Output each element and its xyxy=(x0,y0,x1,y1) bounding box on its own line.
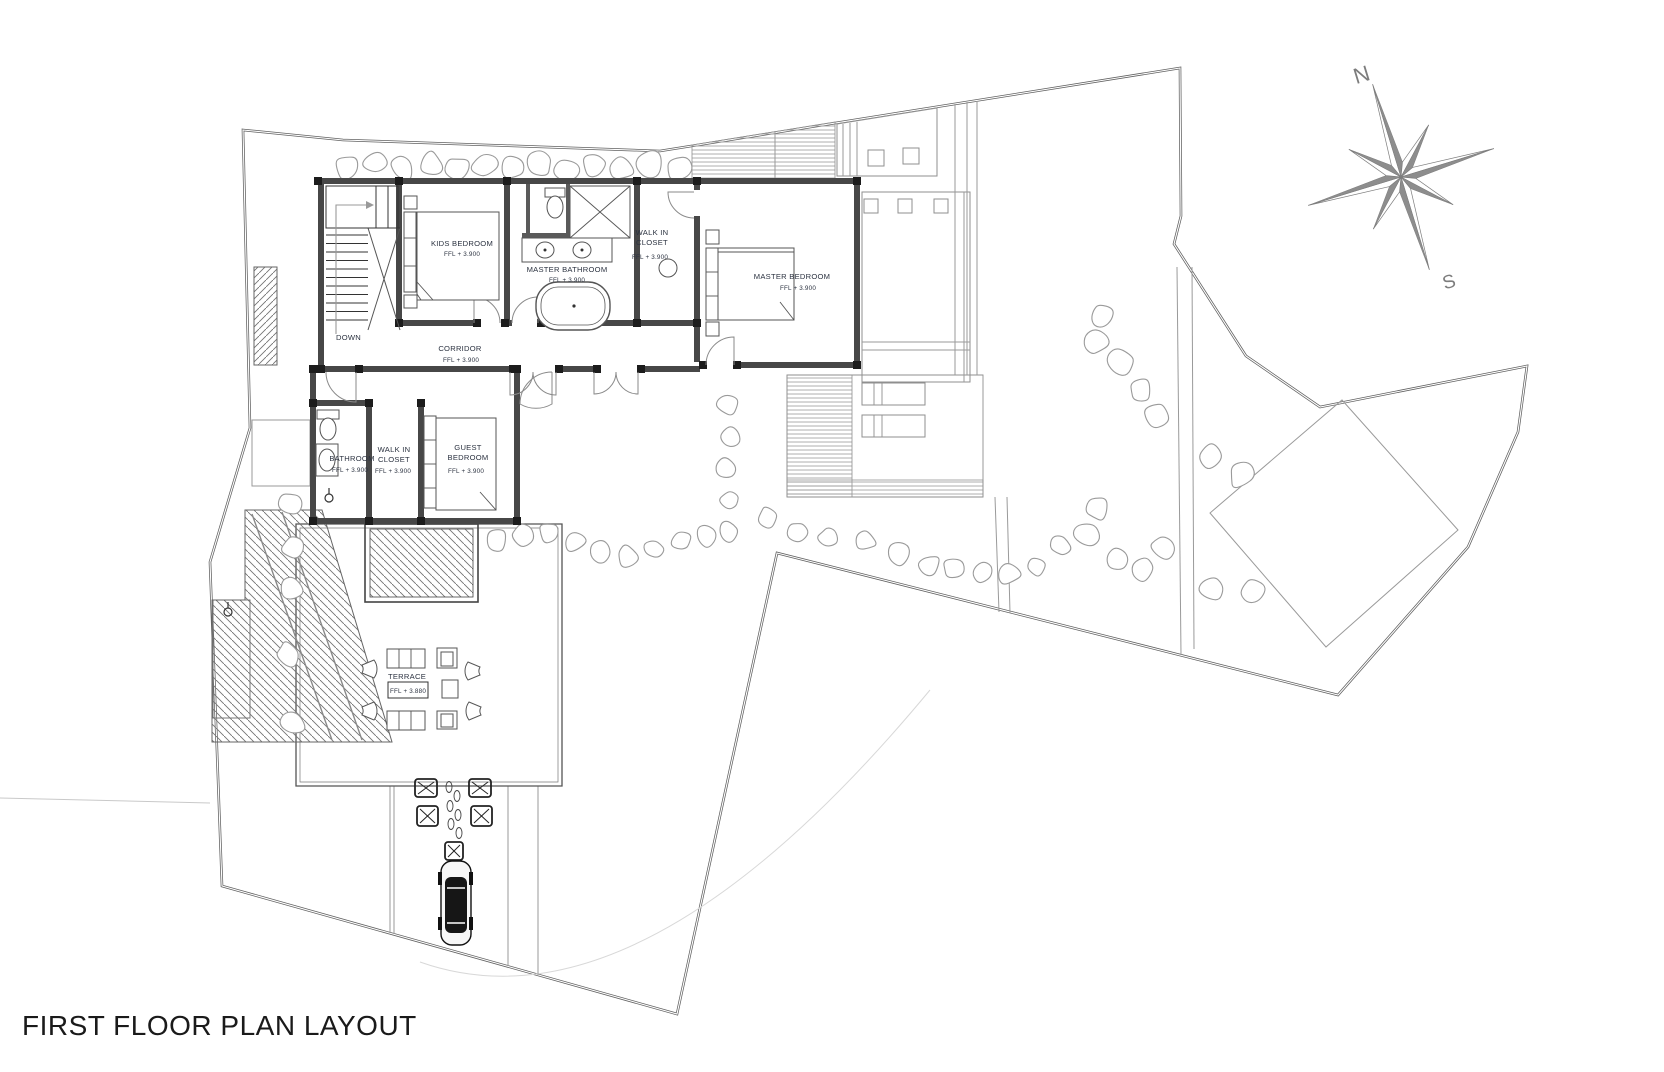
page-title: FIRST FLOOR PLAN LAYOUT xyxy=(22,1010,417,1041)
compass-north-label: N xyxy=(1350,60,1373,89)
floor-plan-canvas: KIDS BEDROOM FFL + 3.900 MASTER BATHROOM… xyxy=(0,0,1664,1072)
room-label-master-closet-2: CLOSET xyxy=(636,238,668,247)
room-level-guest-closet: FFL + 3.900 xyxy=(375,468,411,475)
room-level-master-bedroom: FFL + 3.900 xyxy=(780,285,816,292)
room-level-corridor: FFL + 3.900 xyxy=(443,357,479,364)
room-label-guest-bedroom-1: GUEST xyxy=(454,443,482,452)
room-level-terrace: FFL + 3.880 xyxy=(390,688,426,695)
room-label-corridor: CORRIDOR xyxy=(438,344,482,353)
room-level-guest-bathroom: FFL + 3.900 xyxy=(332,467,368,474)
room-label-master-bathroom: MASTER BATHROOM xyxy=(527,265,608,274)
room-label-terrace: TERRACE xyxy=(388,672,426,681)
room-level-master-bathroom: FFL + 3.900 xyxy=(549,277,585,284)
room-label-master-bedroom: MASTER BEDROOM xyxy=(754,272,831,281)
room-label-master-closet-1: WALK IN xyxy=(636,228,669,237)
room-label-kids-bedroom: KIDS BEDROOM xyxy=(431,239,493,248)
compass-south-label: S xyxy=(1440,271,1458,295)
room-level-master-closet: FFL + 3.900 xyxy=(632,254,668,261)
compass-rose-icon xyxy=(1308,84,1494,270)
room-label-guest-closet-2: CLOSET xyxy=(378,455,410,464)
floor-plan-drawing: KIDS BEDROOM FFL + 3.900 MASTER BATHROOM… xyxy=(0,0,1664,1072)
driveway xyxy=(415,779,492,945)
room-label-guest-bathroom: BATHROOM xyxy=(329,454,374,463)
room-label-guest-bedroom-2: BEDROOM xyxy=(448,453,489,462)
room-level-kids-bedroom: FFL + 3.900 xyxy=(444,251,480,258)
room-label-guest-closet-1: WALK IN xyxy=(378,445,411,454)
site-boundary xyxy=(0,68,1527,1014)
stair-down-label: DOWN xyxy=(336,333,361,342)
room-level-guest-bedroom: FFL + 3.900 xyxy=(448,468,484,475)
